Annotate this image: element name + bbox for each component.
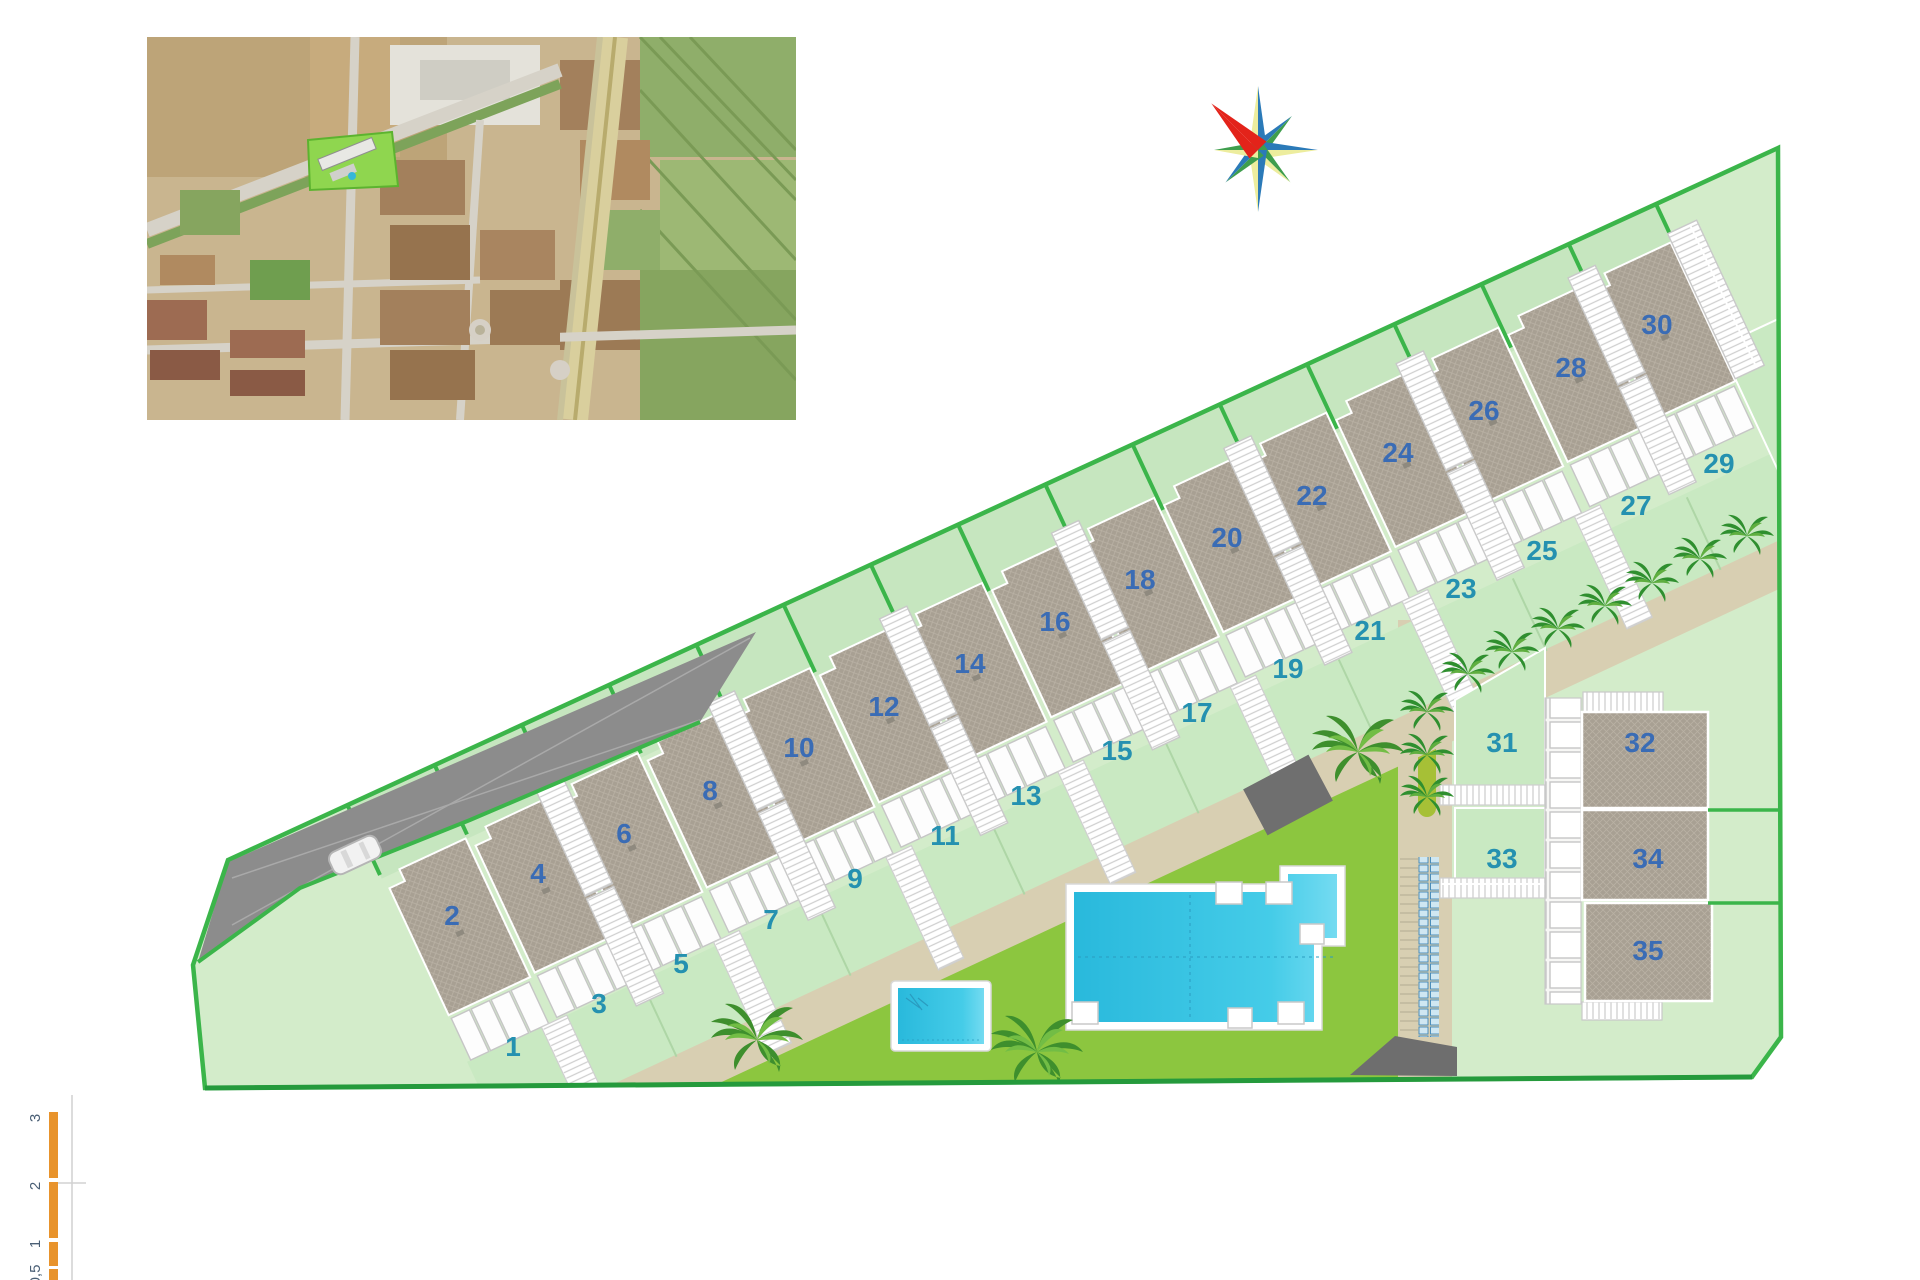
plot-label-17: 17	[1181, 697, 1212, 728]
plot-label-13: 13	[1010, 780, 1041, 811]
aerial-highlighted-parcel	[308, 132, 398, 190]
scale-label-2: 2	[27, 1182, 44, 1190]
parking-stall-ticks	[1399, 855, 1418, 1038]
plot-label-34: 34	[1632, 843, 1664, 874]
plot-label-3: 3	[591, 988, 607, 1019]
plot-label-30: 30	[1641, 309, 1672, 340]
scale-label-0-5: 0,5	[27, 1265, 44, 1280]
plot-label-6: 6	[616, 818, 632, 849]
scale-label-3: 3	[27, 1114, 44, 1122]
plot-label-24: 24	[1382, 437, 1414, 468]
plot-label-15: 15	[1101, 735, 1132, 766]
plot-label-22: 22	[1296, 480, 1327, 511]
plan-sheet: 1 2 3 4 5 6 7 8 9 10 11 12 13 14 15 16 1…	[0, 0, 1920, 1280]
plot-label-4: 4	[530, 858, 546, 889]
scale-label-1: 1	[27, 1240, 44, 1248]
bike-parking-row	[1418, 857, 1439, 1037]
compass-rose-icon	[1203, 86, 1318, 212]
plot-label-5: 5	[673, 948, 689, 979]
plot-label-35: 35	[1632, 935, 1663, 966]
plot-label-18: 18	[1124, 564, 1155, 595]
site-plan: 1 2 3 4 5 6 7 8 9 10 11 12 13 14 15 16 1…	[0, 0, 1920, 1280]
plot-label-32: 32	[1624, 727, 1655, 758]
swimming-pool	[1066, 866, 1345, 1030]
plot-label-27: 27	[1620, 490, 1651, 521]
plot-label-16: 16	[1039, 606, 1070, 637]
plot-label-7: 7	[763, 904, 779, 935]
plot-label-10: 10	[783, 732, 814, 763]
plot-label-23: 23	[1445, 573, 1476, 604]
plot-label-11: 11	[930, 820, 960, 851]
plot-label-26: 26	[1468, 395, 1499, 426]
plot-label-25: 25	[1526, 535, 1557, 566]
scale-bar: 3 2 1 0,5	[27, 1095, 86, 1280]
plot-label-28: 28	[1555, 352, 1586, 383]
plot-label-12: 12	[868, 691, 899, 722]
plot-label-8: 8	[702, 775, 718, 806]
plot-label-33: 33	[1486, 843, 1517, 874]
kids-pool	[891, 981, 991, 1051]
plot-label-2: 2	[444, 900, 460, 931]
plot-label-21: 21	[1354, 615, 1385, 646]
plot-label-19: 19	[1272, 653, 1303, 684]
plot-label-20: 20	[1211, 522, 1242, 553]
plot-label-31: 31	[1486, 727, 1517, 758]
plot-label-14: 14	[954, 648, 986, 679]
plot-label-29: 29	[1703, 448, 1734, 479]
plot-label-9: 9	[847, 863, 863, 894]
plot-label-1: 1	[505, 1031, 521, 1062]
aerial-photo-inset	[147, 37, 796, 420]
